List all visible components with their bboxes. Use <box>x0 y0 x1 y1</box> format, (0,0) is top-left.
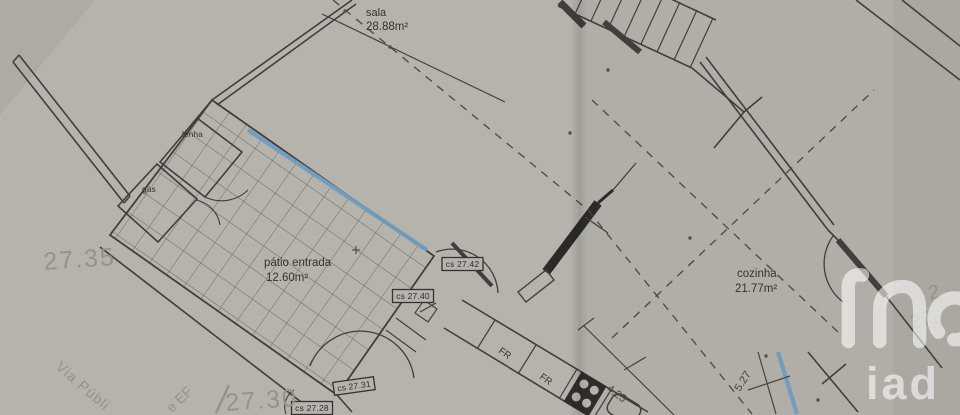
level-marker-cs-27-42: cs 27.42 <box>442 258 483 271</box>
floor-plan-drawing: 4.25 5.27 FR FR sala 28.88m² pátio entra… <box>0 0 960 415</box>
svg-text:cs 27.40: cs 27.40 <box>396 291 430 301</box>
room-area-patio: 12.60m² <box>266 272 308 284</box>
room-label-sala: sala <box>366 7 387 19</box>
room-label-patio: pátio entrada <box>264 257 332 269</box>
level-marker-cs-27-40: cs 27.40 <box>393 290 434 303</box>
elevation-27-30: 27.30 <box>224 384 298 415</box>
svg-text:cs 27.42: cs 27.42 <box>446 259 480 269</box>
room-label-lenha: lenha <box>182 129 203 139</box>
iad-logo-text: iad <box>866 358 940 409</box>
room-area-sala: 28.88m² <box>366 21 408 33</box>
svg-text:cs 27.28: cs 27.28 <box>295 403 329 413</box>
fold-crease <box>570 0 588 415</box>
edge-shading <box>893 0 960 415</box>
room-label-cozinha: cozinha <box>737 268 777 280</box>
room-area-cozinha: 21.77m² <box>735 283 777 295</box>
room-label-gas: gás <box>142 184 156 194</box>
floor-plan-photo: 4.25 5.27 FR FR sala 28.88m² pátio entra… <box>0 0 960 415</box>
elevation-27-35: 27.35 <box>42 243 116 276</box>
